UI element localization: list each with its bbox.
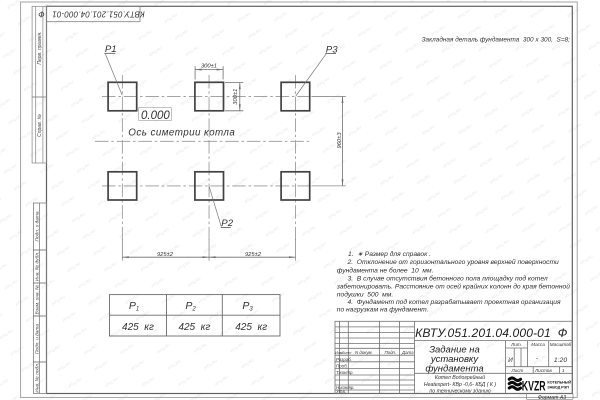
svg-text:Масштаб: Масштаб (550, 342, 572, 347)
svg-text:КВТУ.051.201.04.000-01 Ф: КВТУ.051.201.04.000-01 Ф (415, 326, 568, 340)
svg-text:Heatexpert- КВр -0,6- КБД ( К: Heatexpert- КВр -0,6- КБД ( К ) (424, 382, 497, 388)
svg-text:Подп.: Подп. (385, 350, 397, 355)
svg-text:925±2: 925±2 (245, 252, 262, 258)
svg-text:забетонировать. Расстояние от: забетонировать. Расстояние от осей крайн… (336, 283, 570, 291)
svg-text:1: 1 (562, 368, 565, 373)
svg-text:Подп. и дата: Подп. и дата (35, 324, 41, 354)
svg-text:ЗАВОД РЭП: ЗАВОД РЭП (547, 386, 569, 390)
svg-text:по нагрузкам на фундамент.: по нагрузкам на фундамент. (337, 306, 429, 314)
svg-text:Инв. № дубл.: Инв. № дубл. (35, 252, 41, 282)
svg-text:Котел Водогрейный: Котел Водогрейный (435, 374, 485, 381)
svg-text:425 кг: 425 кг (122, 322, 154, 333)
svg-text:425 кг: 425 кг (178, 322, 210, 333)
svg-text:KVZR: KVZR (522, 379, 546, 395)
svg-text:300±1: 300±1 (233, 89, 239, 105)
svg-text:Листов: Листов (534, 368, 552, 373)
svg-text:подушки 500 мм.: подушки 500 мм. (337, 290, 394, 298)
svg-text:425 кг: 425 кг (235, 322, 267, 333)
svg-text:КОТЕЛЬНЫЙ: КОТЕЛЬНЫЙ (547, 381, 571, 385)
svg-text:Лит.: Лит. (510, 342, 522, 347)
svg-text:фундамента не более 10 мм.: фундамента не более 10 мм. (337, 266, 434, 274)
svg-text:Дата: Дата (401, 350, 414, 355)
svg-text:Формат А3: Формат А3 (538, 395, 566, 400)
svg-text:Утв.: Утв. (336, 389, 346, 394)
svg-text:Масса: Масса (531, 342, 545, 347)
svg-text:Закладная деталь фундамента 3: Закладная деталь фундамента 300 х 300, S… (422, 35, 571, 43)
svg-text:Проб.: Проб. (336, 363, 348, 368)
svg-text:Взам. инв. №: Взам. инв. № (35, 285, 41, 315)
svg-text:960±3: 960±3 (337, 132, 343, 149)
svg-text:3. В случае отсутствия бетонн: 3. В случае отсутствия бетонного пола пл… (348, 275, 548, 283)
svg-text:Перв. примен.: Перв. примен. (37, 31, 43, 64)
svg-text:Лист: Лист (511, 368, 524, 373)
svg-text:1:20: 1:20 (554, 357, 567, 364)
svg-text:N докум.: N докум. (355, 350, 373, 355)
svg-text:КВТУ.051.201.04.000-01 Ф: КВТУ.051.201.04.000-01 Ф (38, 10, 145, 19)
svg-text:Инв. № подл.: Инв. № подл. (35, 363, 41, 393)
svg-text:И: И (508, 357, 513, 364)
svg-text:по техническому зданию: по техническому зданию (429, 389, 490, 395)
svg-text:Подп. и дата: Подп. и дата (35, 211, 41, 241)
svg-text:Справ. №: Справ. № (37, 114, 43, 137)
svg-text:Ось симетрии котла: Ось симетрии котла (128, 127, 235, 138)
svg-text:фундамента: фундамента (425, 364, 483, 375)
svg-text:Лист: Лист (341, 351, 352, 355)
svg-text:Разраб.: Разраб. (336, 357, 352, 362)
svg-text:Т.контр.: Т.контр. (336, 370, 354, 375)
svg-text:0.000: 0.000 (141, 110, 170, 122)
svg-text:925±2: 925±2 (157, 252, 174, 258)
svg-text:4. Фундамент под котел разраб: 4. Фундамент под котел разрабатывает про… (348, 298, 561, 306)
svg-text:2. Отклонение от горизонтальн: 2. Отклонение от горизонтального уровня … (347, 258, 560, 266)
svg-text:300±1: 300±1 (201, 63, 217, 69)
svg-text:1. ∗ Размер для справок .: 1. ∗ Размер для справок . (348, 250, 431, 258)
